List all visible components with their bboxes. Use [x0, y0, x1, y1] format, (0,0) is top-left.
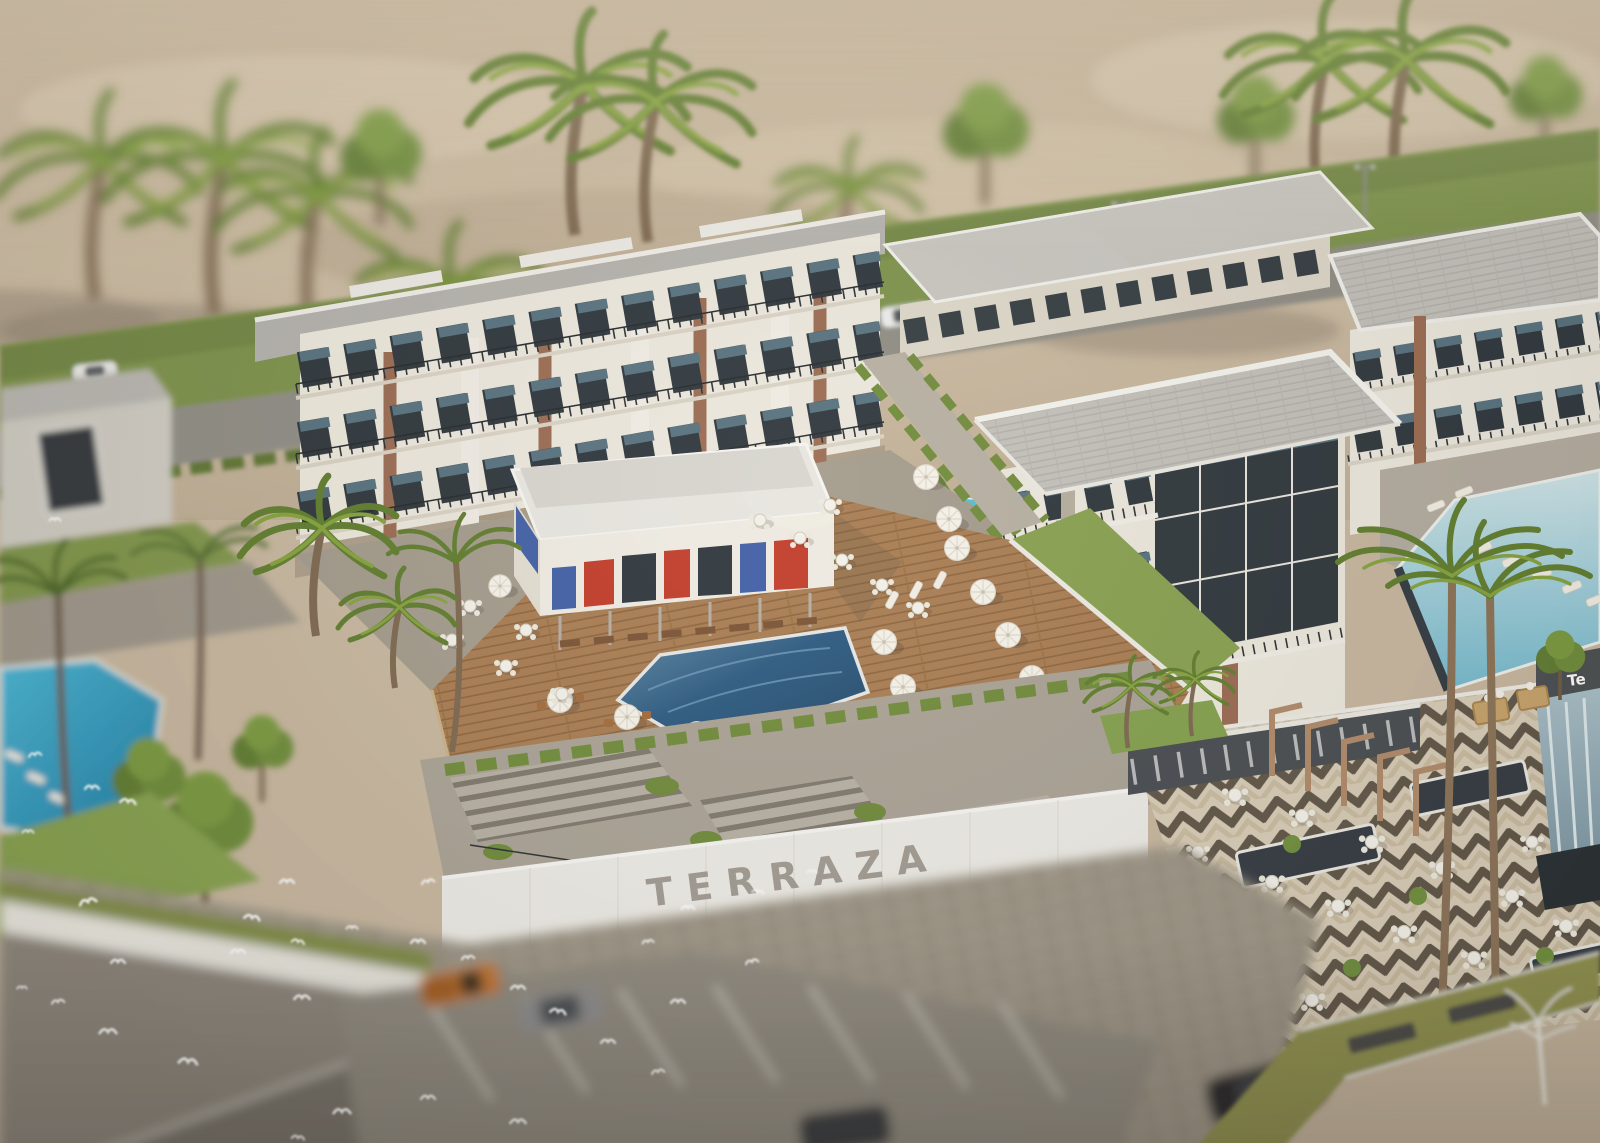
edge-sign-text: Te	[1566, 670, 1586, 690]
scene-svg: TERRAZA Te	[0, 0, 1600, 1143]
palm-trunk	[198, 560, 201, 760]
render-canvas: Aerial tilt-shift architectural renderin…	[0, 0, 1600, 1143]
gatehouse-glass-door	[37, 424, 106, 513]
tree	[232, 715, 294, 802]
